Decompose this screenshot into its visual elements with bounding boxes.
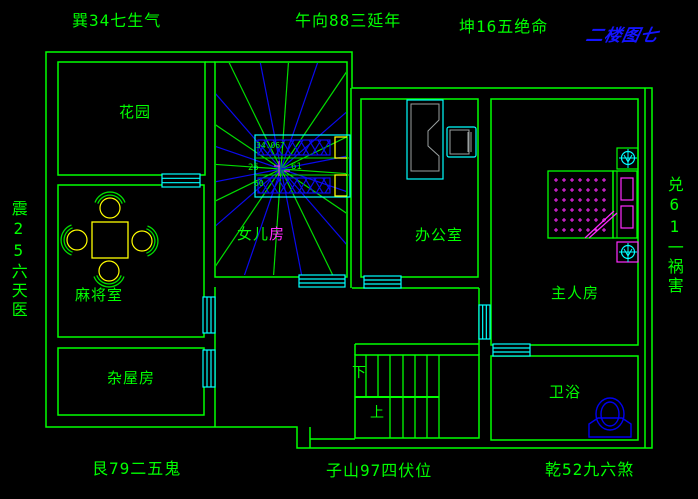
label-mahjong: 麻将室 bbox=[75, 288, 123, 304]
pillow bbox=[621, 178, 633, 200]
annotation-bottom-left: 艮79二五鬼 bbox=[92, 461, 181, 478]
reading-top: 34.067 bbox=[256, 142, 285, 150]
cad-floor-plan: 巽34七生气 午向88三延年 坤16五绝命 二楼图七 震25六天医 兑61一祸害… bbox=[0, 0, 698, 499]
pillow bbox=[621, 206, 633, 228]
bed-quilt-dots bbox=[554, 178, 606, 232]
chair bbox=[132, 231, 152, 251]
annotation-right: 兑61一祸害 bbox=[665, 176, 682, 296]
label-storage: 杂屋房 bbox=[107, 371, 155, 387]
reading-bottom: 50 bbox=[254, 180, 264, 188]
toilet-icon bbox=[589, 398, 631, 437]
label-stairs-up: 上 bbox=[370, 406, 384, 421]
room-office bbox=[361, 99, 478, 277]
chair bbox=[99, 261, 119, 281]
label-office: 办公室 bbox=[415, 228, 463, 244]
annotation-bottom-right: 乾52九六煞 bbox=[545, 462, 634, 479]
label-daughter: 女儿房 bbox=[237, 227, 285, 243]
label-bath: 卫浴 bbox=[549, 385, 581, 401]
desk-outline bbox=[407, 100, 443, 179]
plan-linework bbox=[0, 0, 698, 499]
label-stairs-down: 下 bbox=[352, 366, 366, 381]
label-daughter-prefix: 女儿 bbox=[237, 225, 269, 243]
annotation-top-right: 坤16五绝命 bbox=[459, 19, 548, 36]
annotation-bottom-center: 子山97四伏位 bbox=[326, 463, 432, 480]
chair bbox=[100, 198, 120, 218]
office-desk-set bbox=[407, 100, 476, 179]
annotation-top-left: 巽34七生气 bbox=[72, 13, 161, 30]
reading-right: 61 bbox=[291, 163, 302, 172]
office-chair bbox=[447, 127, 476, 157]
ceiling-fixture-icon bbox=[617, 148, 638, 169]
chair bbox=[67, 230, 87, 250]
stair-treads bbox=[355, 355, 439, 438]
mahjong-table bbox=[92, 222, 128, 258]
mahjong-set bbox=[61, 192, 158, 287]
chair-backs bbox=[61, 192, 158, 287]
label-garden: 花园 bbox=[119, 105, 151, 121]
annotation-left: 震25六天医 bbox=[9, 200, 26, 320]
label-master: 主人房 bbox=[551, 286, 599, 302]
reading-left: 25 bbox=[248, 164, 259, 173]
annotation-top-center: 午向88三延年 bbox=[295, 13, 401, 30]
stair-rail-bottom bbox=[335, 175, 347, 196]
ceiling-fixture-icon bbox=[617, 242, 638, 262]
room-mahjong bbox=[58, 185, 204, 337]
luopan-rays bbox=[22, 0, 541, 428]
sheet-title: 二楼图七 bbox=[584, 28, 660, 46]
label-daughter-suffix: 房 bbox=[269, 225, 285, 243]
desk-top bbox=[411, 104, 439, 171]
blanket-fold bbox=[585, 211, 614, 238]
bed bbox=[548, 171, 637, 238]
